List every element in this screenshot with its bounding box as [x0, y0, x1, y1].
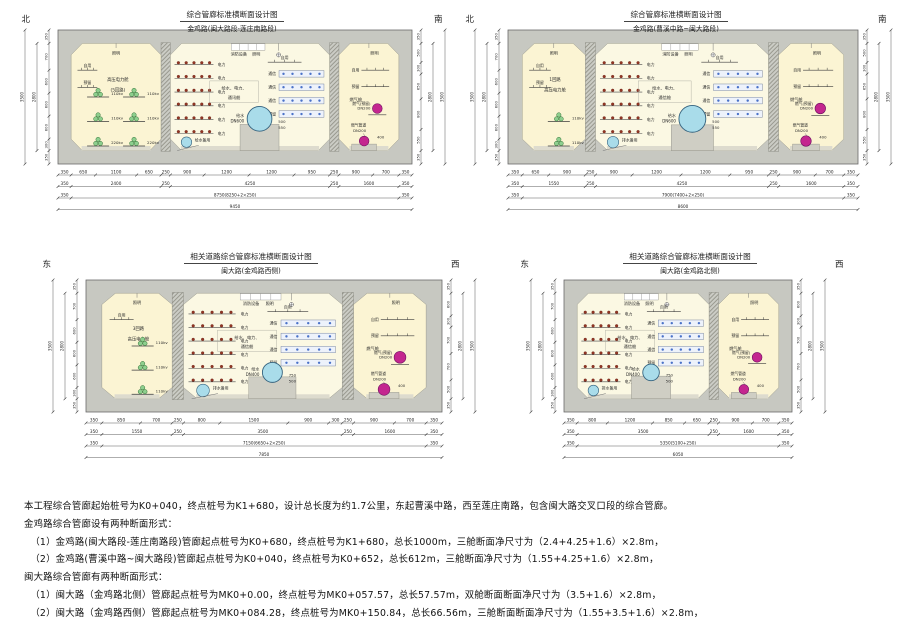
dimension-value: 600	[494, 123, 499, 131]
gas-pipe-reserved-icon	[815, 103, 826, 114]
hv-cable-bundle-icon	[130, 141, 134, 145]
dimension-value: 250	[174, 429, 182, 434]
dimension-value: 700	[406, 417, 414, 422]
dimension-value: 3500	[48, 340, 53, 351]
comm-cable-icon	[282, 99, 284, 101]
comm-cable-icon	[282, 113, 284, 115]
dimension-value: 2800	[482, 91, 487, 102]
drawing-label: 110kv	[111, 91, 124, 96]
section-jinji-road-east: 综合管廊标准横断面设计图 金鸡路(曹溪中路~闽大路段) 北 南 照明自用预留1回…	[452, 2, 900, 244]
dimension-value: 500	[862, 49, 867, 57]
comm-cable-icon	[291, 99, 293, 101]
dimension-value: 1200	[221, 169, 232, 174]
comm-cable-icon	[737, 86, 739, 88]
dimension-value: 3500	[258, 429, 269, 434]
drawing-label: 220kv	[147, 140, 160, 145]
power-cable-icon	[600, 324, 603, 327]
power-cable-icon	[584, 365, 587, 368]
drawing-label: 燃气管道	[731, 371, 746, 376]
hv-cable-bundle-icon	[559, 117, 563, 121]
internal-wall	[585, 43, 595, 152]
comm-cable-icon	[671, 362, 673, 364]
dimension-value: 350	[72, 401, 77, 409]
drawing-label: 通信	[647, 347, 655, 352]
comm-cable-icon	[300, 99, 302, 101]
dimension-value: 250	[344, 429, 352, 434]
power-cable-icon	[611, 75, 614, 78]
section-title: 综合管廊标准横断面设计图	[180, 9, 283, 22]
dimension-value: 800	[588, 417, 596, 422]
section-title: 相关道路综合管廊标准横断面设计图	[184, 251, 318, 264]
power-cable-icon	[177, 116, 180, 119]
power-cable-icon	[230, 338, 233, 341]
power-cable-icon	[192, 311, 195, 314]
drawing-label: 通信	[268, 98, 276, 103]
power-cable-icon	[611, 89, 614, 92]
comm-cable-icon	[318, 86, 320, 88]
project-notes: 本工程综合管廊起始桩号为K0+040，终点桩号为K1+680，设计总长度为约1.…	[24, 498, 900, 623]
dimension-value: 350	[781, 440, 789, 445]
comm-cable-icon	[309, 73, 311, 75]
drawing-label: 给水备用	[195, 137, 211, 142]
dimension-value: 900	[370, 417, 378, 422]
dimension-value: 850	[665, 417, 673, 422]
drain-pipe-icon	[588, 385, 599, 396]
note-line: （2）闽大路（金鸡路西侧）管廊起点桩号为MK0+084.28，终点桩号为MK0+…	[24, 605, 900, 623]
comm-cable-icon	[747, 113, 749, 115]
drawing-label: DN600	[230, 118, 244, 123]
drawing-label: DN200	[800, 106, 814, 111]
hv-cable-bundle-icon	[96, 113, 100, 117]
power-cable-icon	[592, 352, 595, 355]
power-cable-icon	[615, 379, 618, 382]
drawing-label: 750	[289, 372, 297, 377]
drawing-label: 预留	[731, 333, 739, 338]
dimension-value: 350	[72, 282, 77, 290]
dimension-value: 3500	[820, 340, 825, 351]
comm-cable-icon	[689, 348, 691, 350]
power-cable-icon	[201, 324, 204, 327]
power-cable-icon	[220, 324, 223, 327]
power-cable-icon	[628, 89, 631, 92]
drawing-label: 通信	[268, 85, 276, 90]
dimension-value: 350	[550, 401, 555, 409]
comm-cable-icon	[662, 362, 664, 364]
comm-cable-icon	[727, 73, 729, 75]
drawing-label: 220kv	[111, 140, 124, 145]
power-cable-icon	[230, 352, 233, 355]
comm-cable-icon	[318, 99, 320, 101]
drawing-label: 预留	[352, 84, 360, 89]
dimension-value: 4250	[677, 181, 688, 186]
power-cable-icon	[193, 75, 196, 78]
power-cable-icon	[193, 61, 196, 64]
floor-screed	[534, 146, 574, 151]
power-cable-icon	[620, 61, 623, 64]
drawing-label: 照明	[370, 51, 378, 56]
drawing-label: DN400	[626, 372, 640, 377]
drawing-label: DN200	[373, 376, 387, 381]
dimension-value: 700	[72, 302, 77, 310]
dimension-value: 600	[494, 77, 499, 85]
power-cable-icon	[185, 75, 188, 78]
drawing-label: 电力	[647, 103, 655, 108]
comm-cable-icon	[737, 99, 739, 101]
dimension-value: 350	[847, 181, 855, 186]
power-cable-icon	[603, 75, 606, 78]
power-cable-icon	[600, 379, 603, 382]
dimension-value: 350	[494, 32, 499, 40]
section-subtitle: 金鸡路(闽大路段-莲庄南路段)	[8, 23, 456, 33]
comm-cable-icon	[727, 113, 729, 115]
drawing-label: 自用	[536, 63, 544, 68]
dimension-value: 350	[567, 429, 575, 434]
hv-cable-bundle-icon	[557, 113, 561, 117]
water-pipe-icon	[679, 105, 706, 132]
dimension-value: 8750(8250+2×250)	[214, 192, 257, 197]
dimension-value: 1100	[111, 169, 122, 174]
cross-section-drawing-4: 消防设备照明自用电力电力电力电力电力电力给水、电力、通信舱通信通信通信预留给水D…	[488, 244, 892, 494]
dimension-value: 350	[862, 153, 867, 161]
section-subtitle: 闽大路(金鸡路西侧)	[14, 265, 488, 275]
drawing-label: 电力	[625, 352, 633, 357]
drawing-label: 550	[712, 125, 720, 130]
drawing-label: 预留	[84, 80, 92, 85]
drain-pipe-icon	[197, 384, 210, 397]
dimension-value: 1200	[651, 169, 662, 174]
hv-cable-bundle-icon	[140, 337, 144, 341]
dimension-value: 650	[693, 417, 701, 422]
water-pipe-icon	[262, 362, 282, 382]
dimension-value: 800	[198, 417, 206, 422]
dimension-value: 3500	[638, 429, 649, 434]
drawing-label: 消防设备	[662, 50, 678, 56]
power-cable-icon	[230, 365, 233, 368]
drawing-label: 自用	[660, 304, 668, 309]
dimension-value: 700	[826, 169, 834, 174]
drawing-label: 通信	[268, 71, 276, 76]
power-cable-icon	[637, 103, 640, 106]
dimension-value: 900	[731, 417, 739, 422]
dimension-value: 350	[90, 429, 98, 434]
drawing-label: 110kv	[156, 364, 169, 369]
comm-cable-icon	[300, 73, 302, 75]
power-cable-icon	[584, 379, 587, 382]
dimension-value: 250	[330, 169, 338, 174]
dimension-value: 350	[401, 181, 409, 186]
gas-pipe-icon	[359, 136, 369, 146]
drawing-label: 电力	[241, 325, 249, 330]
power-cable-icon	[201, 379, 204, 382]
hv-cable-bundle-icon	[140, 385, 144, 389]
dimension-value: 700	[796, 336, 801, 344]
hv-cable-bundle-icon	[94, 117, 98, 121]
dimension-value: 3500	[470, 91, 475, 102]
power-cable-icon	[211, 365, 214, 368]
drawing-label: 照明	[112, 51, 120, 56]
dimension-value: 700	[152, 417, 160, 422]
drawing-label: DN200	[737, 355, 751, 360]
hv-cable-bundle-icon	[134, 141, 138, 145]
dimension-value: 350	[416, 32, 421, 40]
power-cable-icon	[592, 324, 595, 327]
drawing-label: 给水	[251, 365, 259, 371]
section-title-block: 相关道路综合管廊标准横断面设计图 闽大路(金鸡路北侧)	[488, 244, 892, 275]
gas-pipe-icon	[739, 384, 749, 394]
comm-cable-icon	[756, 73, 758, 75]
dimension-value: 350	[446, 282, 451, 290]
hv-cable-bundle-icon	[143, 365, 147, 369]
dimension-value: 900	[563, 169, 571, 174]
dimension-value: 350	[90, 440, 98, 445]
power-cable-icon	[192, 379, 195, 382]
power-cable-icon	[200, 61, 203, 64]
drawing-label: 高压电力舱	[544, 86, 566, 93]
power-cable-icon	[603, 103, 606, 106]
power-cable-icon	[637, 116, 640, 119]
comm-cable-icon	[717, 99, 719, 101]
compartment-gas	[339, 43, 399, 150]
dimension-value: 350	[796, 401, 801, 409]
drawing-label: 通信	[270, 321, 278, 326]
internal-wall	[342, 292, 353, 399]
drawing-label: 通信	[647, 334, 655, 339]
comm-cable-icon	[329, 335, 331, 337]
power-cable-icon	[628, 75, 631, 78]
comm-cable-icon	[307, 362, 309, 364]
power-cable-icon	[620, 130, 623, 133]
hv-cable-bundle-icon	[554, 117, 558, 121]
comm-cable-icon	[680, 362, 682, 364]
power-cable-icon	[628, 103, 631, 106]
drawing-label: 照明	[684, 51, 692, 56]
power-cable-icon	[177, 103, 180, 106]
dimension-value: 350	[494, 153, 499, 161]
comm-cable-icon	[309, 99, 311, 101]
drawing-label: 消防设备	[624, 300, 640, 306]
compartment-power	[522, 43, 585, 150]
floor-screed	[82, 146, 151, 151]
power-cable-icon	[230, 324, 233, 327]
comm-cable-icon	[296, 335, 298, 337]
hv-cable-bundle-icon	[134, 92, 138, 96]
hv-cable-bundle-icon	[138, 389, 142, 393]
power-cable-icon	[200, 130, 203, 133]
dimension-value: 250	[710, 429, 718, 434]
drawing-label: 3回路	[133, 325, 145, 332]
power-cable-icon	[611, 116, 614, 119]
comm-cable-icon	[282, 73, 284, 75]
dimension-value: 600	[446, 300, 451, 308]
power-cable-icon	[607, 338, 610, 341]
dimension-value: 350	[847, 169, 855, 174]
dimension-value: 300	[550, 389, 555, 397]
comm-cable-icon	[698, 348, 700, 350]
drawing-label: 自用	[793, 67, 801, 72]
internal-wall	[330, 43, 339, 152]
dimension-value: 600	[44, 123, 49, 131]
dimension-value: 300	[446, 317, 451, 325]
comm-cable-icon	[291, 73, 293, 75]
dimension-value: 900	[352, 169, 360, 174]
power-cable-icon	[592, 379, 595, 382]
power-cable-icon	[620, 75, 623, 78]
drawing-label: 通信	[702, 71, 710, 76]
dimension-value: 600	[72, 372, 77, 380]
hv-cable-bundle-icon	[140, 361, 144, 365]
dimension-value: 250	[162, 181, 170, 186]
comm-cable-icon	[698, 335, 700, 337]
comm-cable-icon	[307, 335, 309, 337]
power-cable-icon	[600, 338, 603, 341]
hv-cable-bundle-icon	[130, 92, 134, 96]
dimension-value: 7850	[259, 452, 270, 457]
dimension-value: 600	[72, 349, 77, 357]
drawing-label: 110kv	[147, 91, 160, 96]
dimension-value: 4250	[245, 181, 256, 186]
power-cable-icon	[603, 116, 606, 119]
dimension-value: 3500	[526, 340, 531, 351]
drawing-label: 110kv	[111, 116, 124, 121]
comm-cable-icon	[717, 86, 719, 88]
dimension-value: 300	[44, 141, 49, 149]
dimension-value: 250	[174, 417, 182, 422]
power-cable-icon	[220, 311, 223, 314]
dimension-value: 550	[416, 136, 421, 144]
comm-cable-icon	[318, 113, 320, 115]
drawing-label: 通讯舱	[228, 94, 241, 101]
power-cable-icon	[193, 130, 196, 133]
comm-cable-icon	[300, 113, 302, 115]
dimension-value: 250	[586, 169, 594, 174]
drawing-label: 预留	[536, 80, 544, 85]
comm-cable-icon	[309, 113, 311, 115]
comm-cable-icon	[662, 335, 664, 337]
power-cable-icon	[185, 130, 188, 133]
dimension-value: 2800	[874, 91, 879, 102]
dimension-value: 350	[430, 429, 438, 434]
dimension-value: 7900(7400+2×250)	[662, 192, 705, 197]
drain-pipe-icon	[181, 137, 191, 147]
drawing-label: 110kv	[156, 388, 169, 393]
dimension-value: 300	[72, 389, 77, 397]
dimension-value: 700	[762, 417, 770, 422]
power-cable-icon	[200, 89, 203, 92]
dimension-value: 300	[494, 141, 499, 149]
comm-cable-icon	[318, 335, 320, 337]
drawing-label: 照明	[813, 51, 821, 56]
comm-cable-icon	[285, 335, 287, 337]
comm-cable-icon	[662, 348, 664, 350]
dimension-value: 650	[416, 82, 421, 90]
power-cable-icon	[607, 311, 610, 314]
drawing-label: 给水、电力、	[617, 334, 642, 341]
dimension-value: 350	[61, 181, 69, 186]
power-cable-icon	[177, 61, 180, 64]
dimension-value: 300	[331, 417, 339, 422]
drawing-label: 110kv	[147, 116, 160, 121]
power-cable-icon	[192, 338, 195, 341]
comm-cable-icon	[747, 99, 749, 101]
comm-cable-icon	[329, 362, 331, 364]
drawing-label: 电力	[647, 131, 655, 136]
drawing-label: 电力	[218, 103, 226, 108]
drawing-label: 通信舱	[624, 343, 637, 350]
dimension-value: 350	[567, 417, 575, 422]
comm-cable-icon	[291, 113, 293, 115]
comm-cable-icon	[329, 322, 331, 324]
dimension-value: 9450	[230, 204, 241, 209]
note-line: （2）金鸡路(曹溪中路~闽大路段)管廊起点桩号为K0+040，终点桩号为K0+6…	[24, 551, 900, 569]
dimension-value: 800	[862, 110, 867, 118]
power-cable-icon	[615, 324, 618, 327]
drawing-label: 电力	[647, 117, 655, 122]
power-cable-icon	[611, 103, 614, 106]
comm-cable-icon	[662, 322, 664, 324]
power-cable-icon	[185, 116, 188, 119]
internal-wall	[161, 43, 170, 152]
drawing-label: 消防设备	[231, 50, 247, 56]
dimension-value: 350	[61, 192, 69, 197]
power-cable-icon	[584, 324, 587, 327]
comm-cable-icon	[756, 113, 758, 115]
comm-cable-icon	[291, 86, 293, 88]
drawing-label: 自用	[118, 312, 126, 317]
hv-cable-bundle-icon	[132, 113, 136, 117]
comm-cable-icon	[671, 335, 673, 337]
power-cable-icon	[208, 130, 211, 133]
dimension-value: 350	[416, 153, 421, 161]
drawing-label: 照明	[645, 301, 653, 306]
power-cable-icon	[208, 103, 211, 106]
drawing-label: 通信舱	[241, 343, 254, 350]
section-title-block: 综合管廊标准横断面设计图 金鸡路(闽大路段-莲庄南路段)	[8, 2, 456, 33]
hv-cable-bundle-icon	[96, 88, 100, 92]
drawing-label: 自用	[281, 55, 289, 60]
drawing-label: 通信舱	[658, 94, 671, 101]
gas-pipe-reserved-icon	[394, 351, 406, 363]
internal-wall	[768, 43, 778, 152]
drawing-label: 照明	[392, 300, 400, 305]
power-cable-icon	[192, 365, 195, 368]
drawing-label: DN200	[353, 128, 367, 133]
dimension-value: 900	[304, 417, 312, 422]
dimension-value: 600	[550, 349, 555, 357]
hv-cable-bundle-icon	[98, 141, 102, 145]
dimension-value: 650	[79, 169, 87, 174]
comm-cable-icon	[756, 99, 758, 101]
drawing-label: 照明	[750, 300, 758, 305]
dimension-value: 6050	[673, 452, 684, 457]
power-cable-icon	[185, 89, 188, 92]
drawing-label: 高压电力舱	[128, 335, 150, 342]
dimension-value: 1600	[743, 429, 754, 434]
dimension-value: 350	[781, 429, 789, 434]
section-jinji-road-west: 综合管廊标准横断面设计图 金鸡路(闽大路段-莲庄南路段) 北 南 照明自用预留高…	[8, 2, 456, 244]
comm-cable-icon	[307, 322, 309, 324]
gas-pipe-icon	[378, 383, 390, 395]
drawing-label: DN200	[357, 106, 371, 111]
comm-cable-icon	[737, 113, 739, 115]
comm-cable-icon	[318, 362, 320, 364]
power-cable-icon	[201, 311, 204, 314]
drawing-label: 电力	[625, 325, 633, 330]
power-cable-icon	[584, 311, 587, 314]
power-cable-icon	[192, 324, 195, 327]
power-cable-icon	[637, 61, 640, 64]
power-cable-icon	[600, 365, 603, 368]
drawing-label: 400	[757, 383, 765, 388]
